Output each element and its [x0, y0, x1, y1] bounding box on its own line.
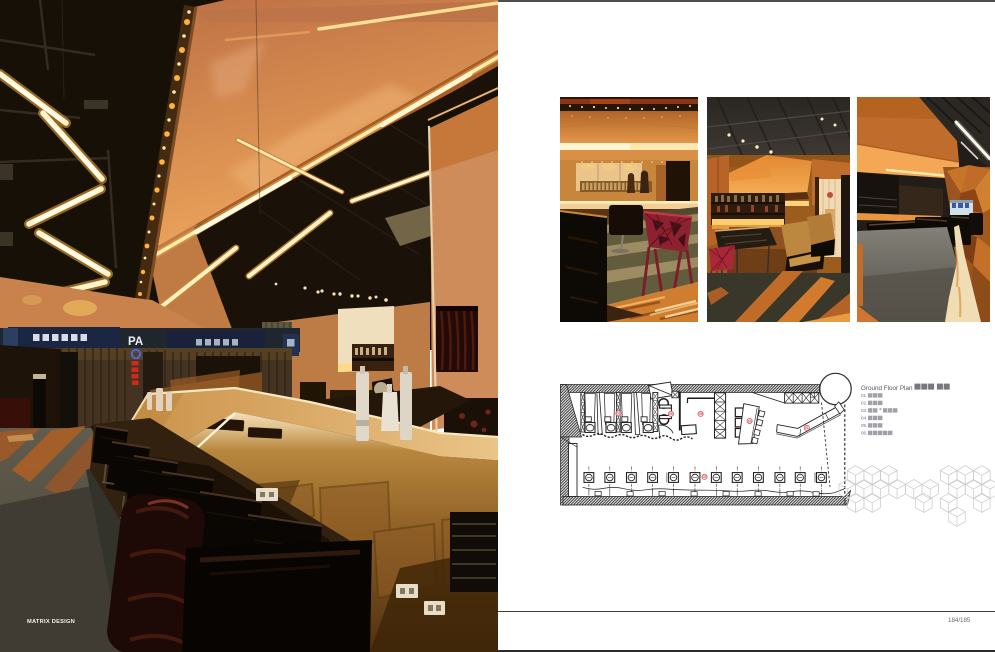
svg-text:02: 02: [617, 412, 621, 416]
svg-text:03.: 03.: [861, 408, 867, 413]
svg-text:05.: 05.: [861, 423, 867, 428]
svg-text:04.: 04.: [861, 416, 867, 421]
svg-text:01.: 01.: [861, 393, 867, 398]
svg-text:02.: 02.: [861, 401, 867, 406]
svg-text:03: 03: [703, 475, 707, 479]
svg-text:06: 06: [669, 412, 673, 416]
svg-text:06.: 06.: [861, 431, 867, 436]
svg-text:Ground Floor Plan: Ground Floor Plan: [861, 385, 913, 392]
svg-text:04: 04: [748, 419, 752, 423]
svg-text:01: 01: [805, 426, 809, 430]
svg-text:05: 05: [699, 412, 703, 416]
